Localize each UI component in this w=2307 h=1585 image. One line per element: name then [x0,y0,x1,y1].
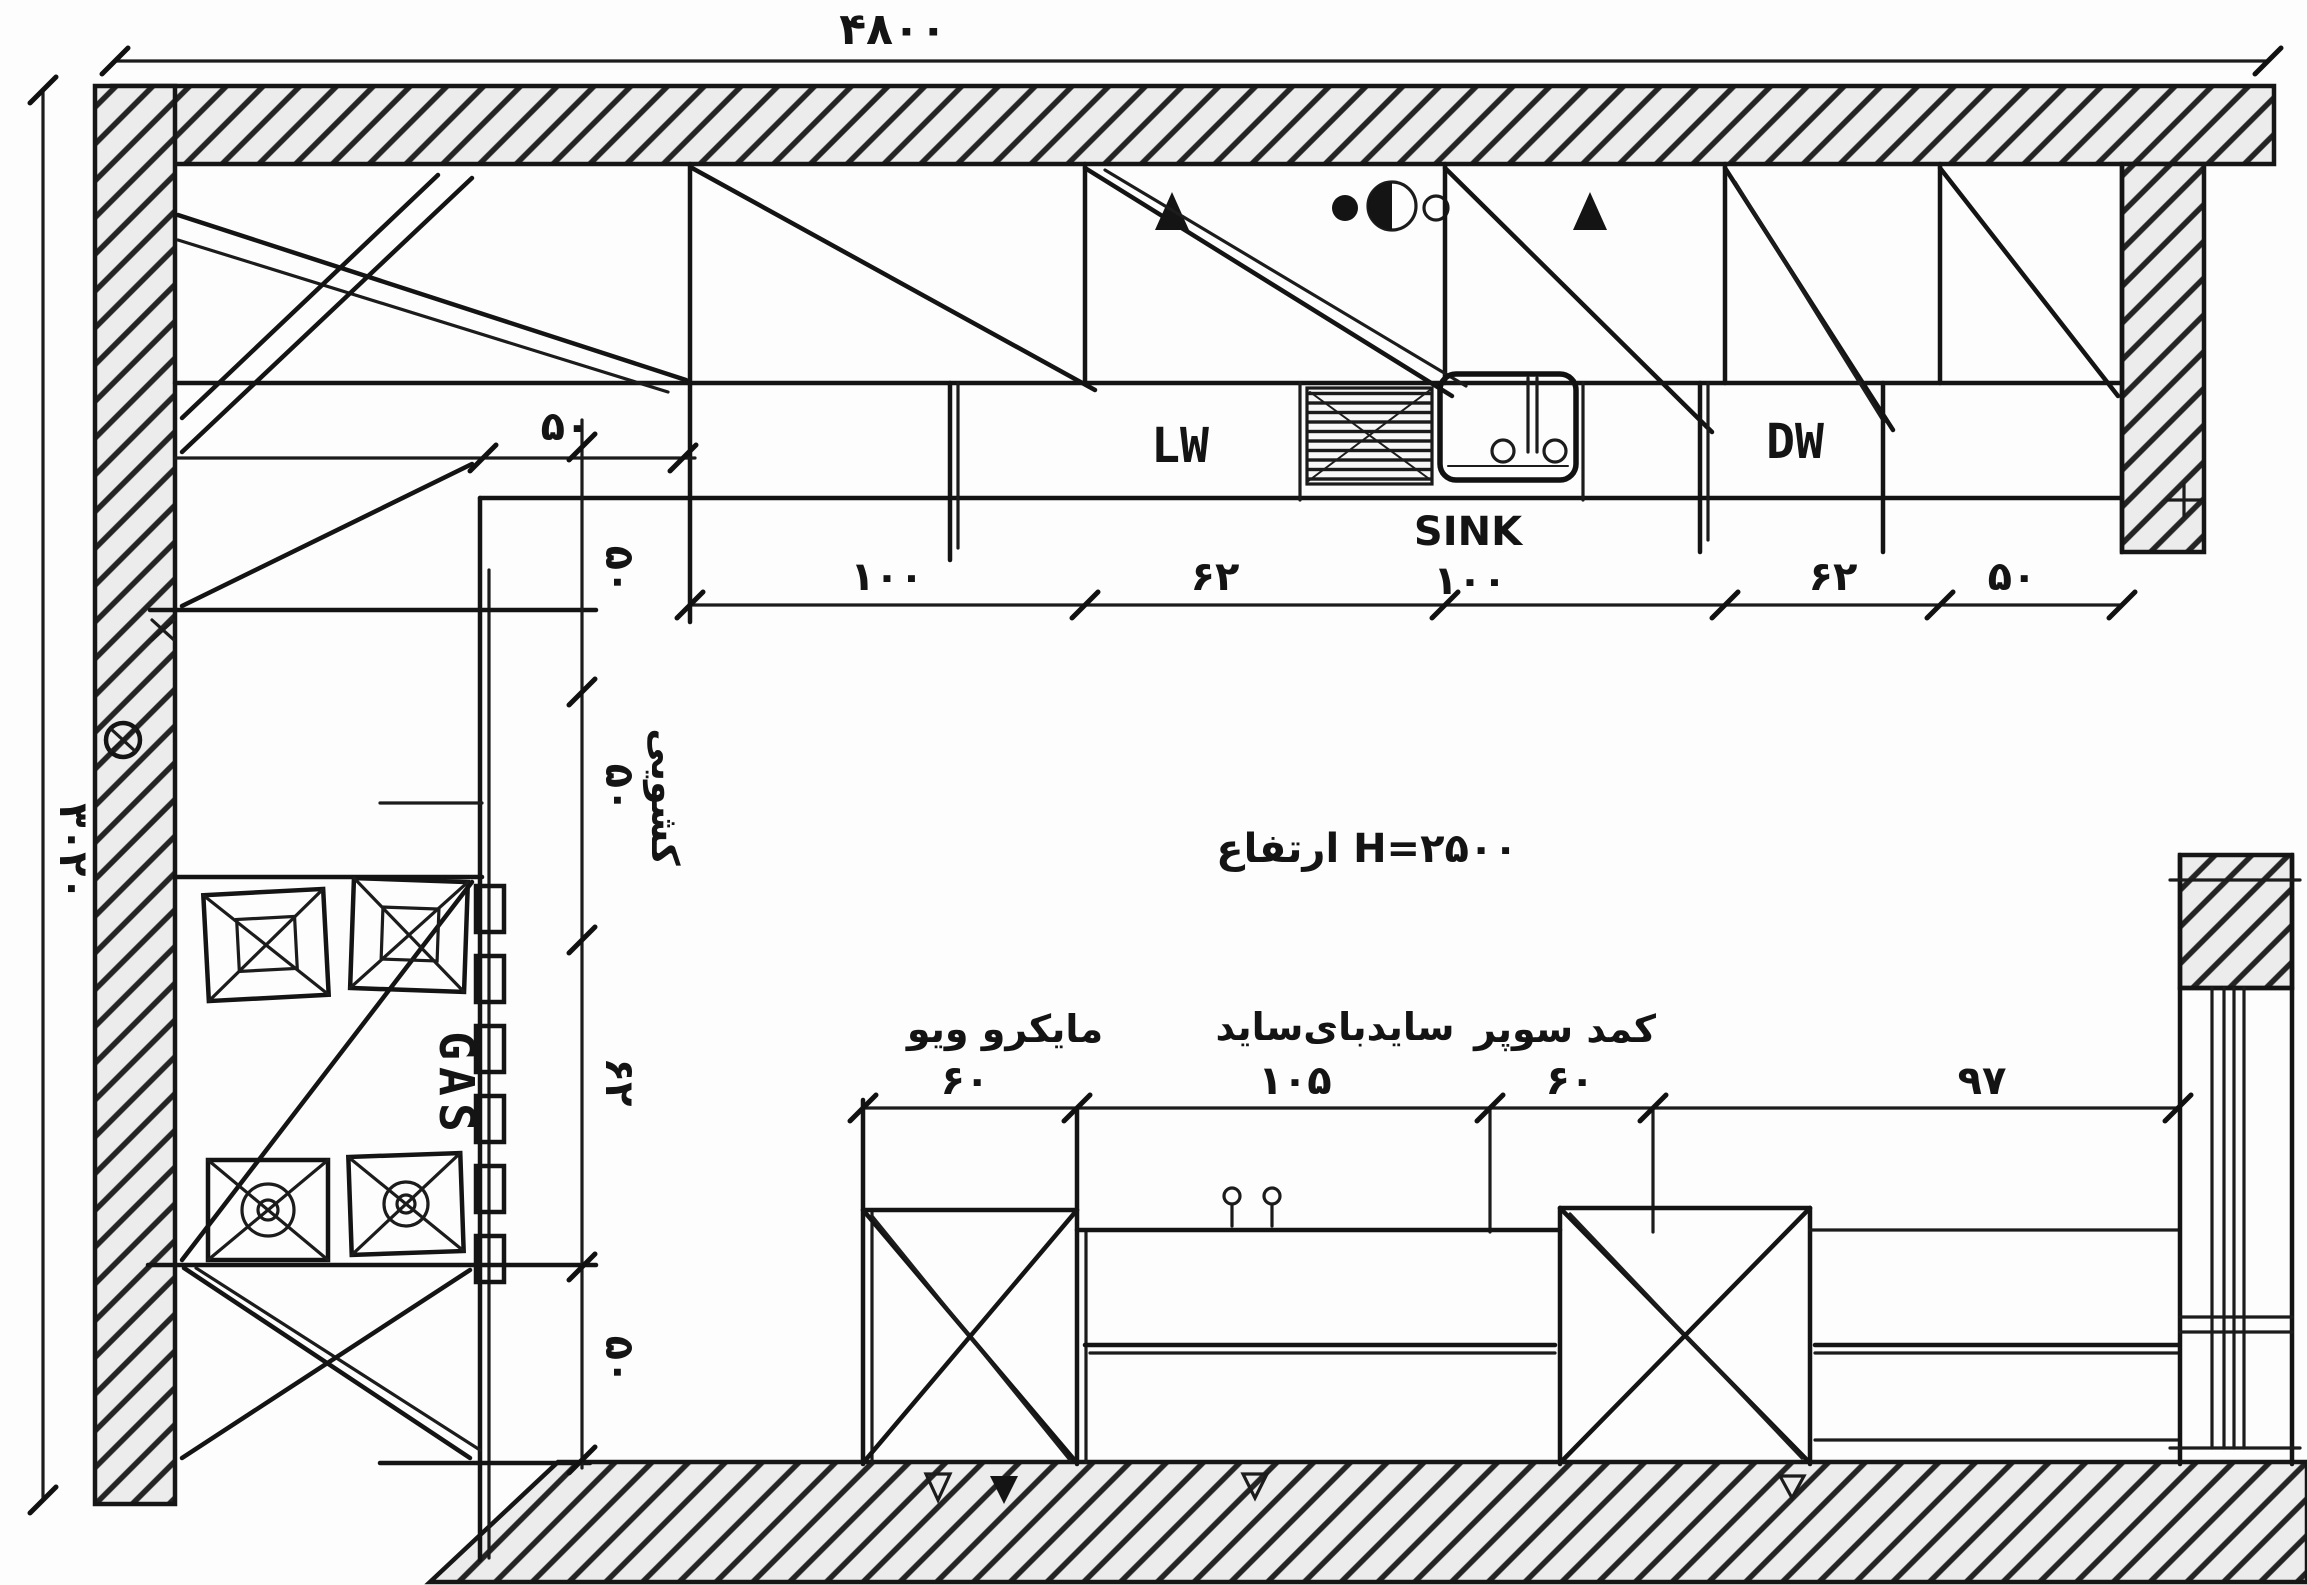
dim-left-depth: ۵۰ [175,404,696,471]
sink-bowl [1440,374,1576,480]
label-side-by-side: سایدبای‌ساید [1215,1005,1454,1049]
label-microwave: مایکرو ویو [905,1007,1103,1052]
dim-text: ۵۰ [596,1336,642,1385]
gas-burner-icon [203,889,328,1001]
dim-overall-depth: ۳۰۲۰ [30,77,96,1513]
dim-text: ۱۰۰ [850,554,923,600]
kitchen-plan-sheet: LW DW SINK [0,0,2307,1585]
faucet-knob-icon [1492,440,1514,462]
dimensions: ۴۸۰۰ ۳۰۲۰ ۱۰۰ ۶۲ ۱۰۰ ۶۲ ۵۰ [30,4,2281,1513]
label-drawer: کشویی [643,728,687,866]
dim-top-run: ۱۰۰ ۶۲ ۱۰۰ ۶۲ ۵۰ [677,554,2135,618]
dim-text: ۶۲ [1191,554,1240,600]
label-lw: LW [1151,418,1209,474]
top-wall [112,86,2274,164]
label-sink: SINK [1414,509,1524,555]
dim-text: ۶۲ [596,1058,642,1107]
dim-text: ۴۸۰۰ [839,4,946,55]
top-wall-markers [1155,182,1607,230]
label-gas: GAS [428,1031,484,1139]
walls [95,86,2307,1582]
dim-overall-width: ۴۸۰۰ [102,4,2281,74]
dim-text: ۵۰ [1988,554,2037,600]
gas-burner-icon [350,878,468,992]
sink-fixture: SINK [1307,374,1576,555]
bottom-wall [430,1462,2307,1582]
kitchen-plan-drawing: LW DW SINK [0,0,2307,1585]
right-lower-wall-block [2180,855,2292,988]
dim-text: ۵۰ [596,764,642,813]
triangle-marker-icon [1573,192,1607,230]
left-wall [95,86,175,1504]
dim-text: ۱۰۵ [1258,1058,1331,1104]
dim-text: ۶۲ [1809,554,1858,600]
dim-text: ۶۰ [941,1058,990,1104]
gas-burner-icon [348,1153,463,1255]
height-note: ارتفاع H=۲۵۰۰ [1216,826,1517,872]
hinge-icon [1224,1188,1240,1226]
dim-text: ۶۰ [1546,1058,1595,1104]
label-super-cabinet: کمد سوپر [1472,1007,1657,1051]
faucet-knob-icon [1544,440,1566,462]
dim-text: ۵۰ [596,546,642,595]
dim-bottom-run: ۶۰ ۱۰۵ ۶۰ ۹۷ [850,1058,2191,1121]
hinge-icon [1264,1188,1280,1226]
dim-text: ۳۰۲۰ [50,803,96,901]
gas-burner-icon [208,1160,328,1260]
half-circle-marker-icon [1368,182,1416,230]
right-wall-stub [2122,164,2204,552]
dot-marker-icon [1332,195,1358,221]
dim-text: ۹۷ [1958,1058,2007,1104]
label-dw: DW [1766,414,1824,470]
dim-left-run: ۵۰ ۵۰ ۶۲ ۵۰ [569,420,642,1473]
dim-text: ۱۰۰ [1433,558,1506,604]
